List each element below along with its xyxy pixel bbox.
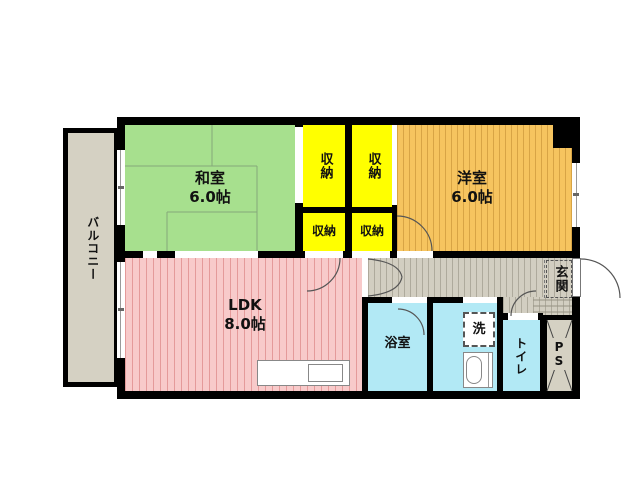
window-sash-tick (118, 186, 124, 189)
hallway (368, 258, 572, 297)
opening-youshitsu-door (397, 251, 433, 258)
washitsu-window (117, 150, 125, 225)
opening-storage-br (352, 251, 390, 258)
opening-washitsu-ldk-small (143, 251, 157, 258)
wall-toilet-ps (540, 315, 547, 391)
wall-top (117, 117, 580, 125)
opening-bathroom-door (392, 297, 427, 303)
opening-washitsu-ldk (175, 251, 258, 258)
floor-plan: バルコニー 和室 6.0帖 洋室 6.0帖 LDK 8.0帖 収納 収納 収納 … (0, 0, 640, 480)
bathroom-label: 浴室 (370, 336, 425, 352)
storage-bottom-left-label: 収納 (303, 224, 345, 240)
washitsu-label: 和室 6.0帖 (155, 167, 265, 209)
wall-ps-top (543, 315, 572, 320)
pipe-space-label: P S (549, 338, 569, 370)
wall-ldk-bathroom (362, 297, 368, 391)
youshitsu-window (572, 163, 580, 227)
storage-top-right-label: 収納 (362, 140, 382, 192)
toilet-label: トイレ (511, 326, 529, 386)
youshitsu-label: 洋室 6.0帖 (417, 167, 527, 209)
opening-toilet-door (508, 313, 538, 320)
wall-bottom (117, 391, 580, 399)
laundry-label: 洗 (465, 320, 493, 340)
washbasin-bowl (466, 356, 482, 384)
wall-corner-notch (553, 117, 580, 148)
wall-bathroom-washroom (427, 303, 433, 391)
opening-storage-bl (305, 251, 343, 258)
wall-storage-mid-v (345, 125, 352, 251)
ldk-label: LDK 8.0帖 (190, 294, 300, 336)
entrance-label: 玄関 (548, 262, 570, 296)
opening-storage-tr (392, 125, 397, 205)
opening-storage-tl (295, 127, 303, 203)
storage-bottom-right-label: 収納 (352, 224, 392, 240)
front-door-arc (581, 259, 620, 298)
wall-storage-mid-h (295, 207, 397, 213)
window-sash-tick (118, 308, 124, 311)
washbasin-divider (488, 353, 489, 387)
front-door-leaf (572, 258, 581, 297)
kitchen-sink (308, 364, 343, 382)
window-sash-tick (573, 193, 579, 196)
balcony-label: バルコニー (80, 192, 104, 304)
storage-top-left-label: 収納 (314, 140, 334, 192)
opening-washroom (463, 297, 497, 303)
wall-washroom-toilet (497, 297, 503, 391)
ldk-window (117, 262, 125, 358)
